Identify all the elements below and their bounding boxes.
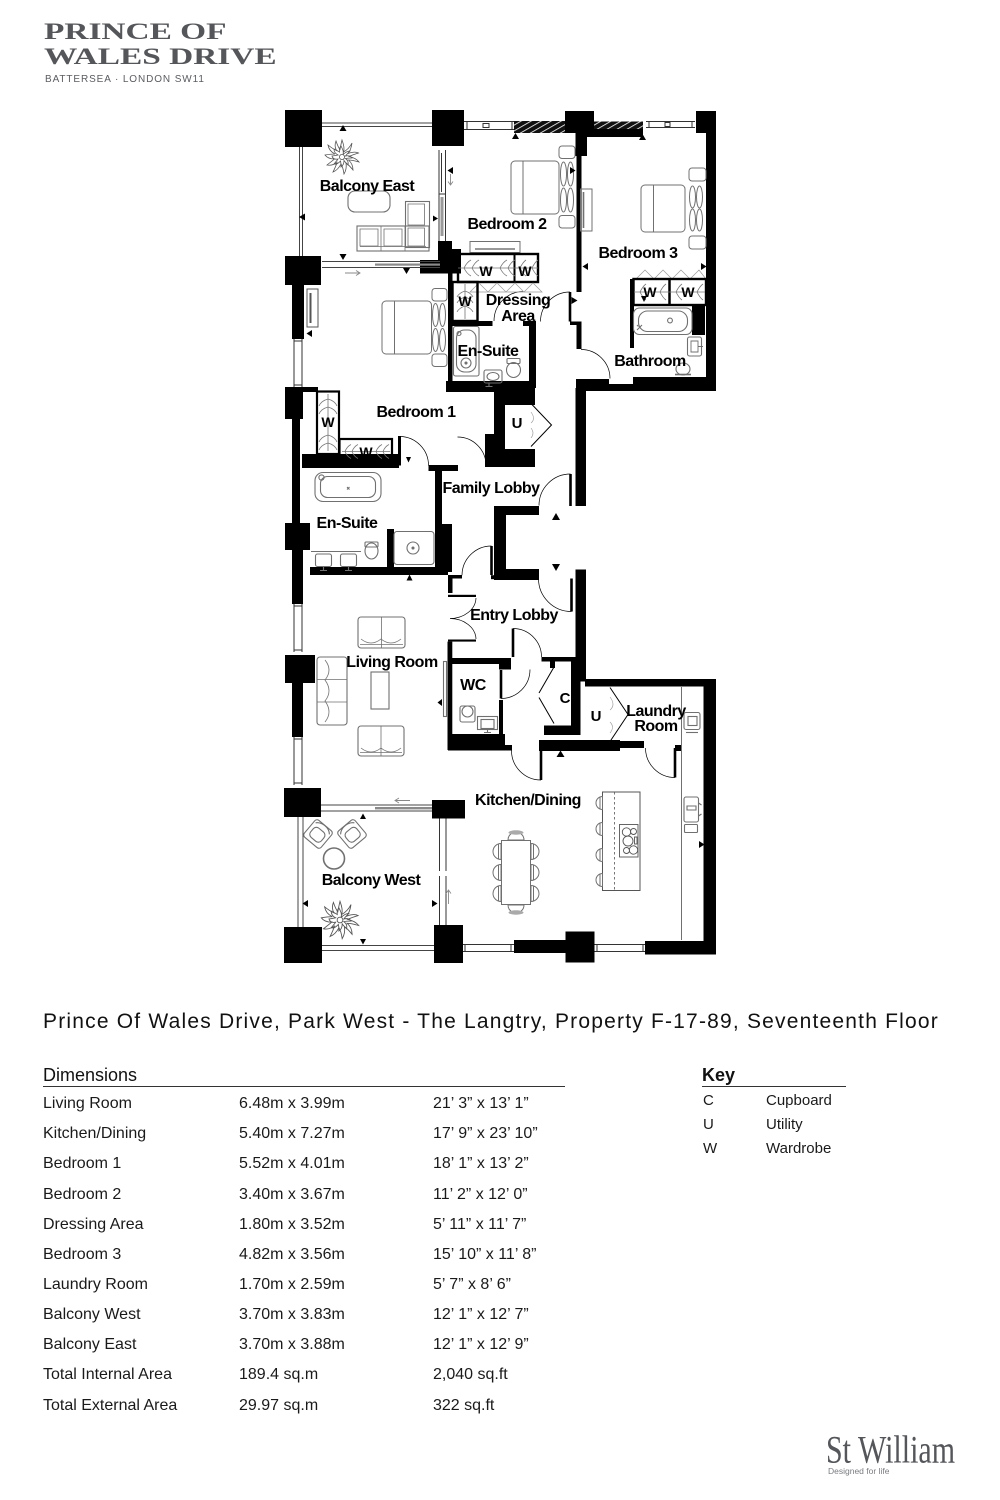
- svg-text:Area: Area: [501, 308, 535, 325]
- svg-text:W: W: [643, 284, 657, 300]
- svg-text:Bedroom 3: Bedroom 3: [598, 245, 678, 262]
- svg-text:U: U: [512, 415, 523, 432]
- svg-text:Living Room: Living Room: [346, 654, 438, 671]
- svg-text:Room: Room: [634, 718, 678, 735]
- svg-text:Balcony West: Balcony West: [322, 872, 422, 889]
- svg-text:W: W: [321, 414, 335, 430]
- svg-text:Kitchen/Dining: Kitchen/Dining: [475, 792, 581, 809]
- svg-text:W: W: [359, 444, 373, 460]
- svg-text:W: W: [518, 263, 532, 279]
- svg-text:W: W: [479, 263, 493, 279]
- svg-text:W: W: [681, 284, 695, 300]
- svg-text:C: C: [560, 690, 571, 707]
- svg-text:U: U: [591, 708, 602, 725]
- svg-text:Entry Lobby: Entry Lobby: [470, 607, 558, 624]
- svg-text:Dressing: Dressing: [486, 292, 550, 309]
- svg-text:Bathroom: Bathroom: [614, 353, 686, 370]
- svg-text:Family Lobby: Family Lobby: [442, 480, 540, 497]
- svg-text:Balcony East: Balcony East: [320, 178, 416, 195]
- svg-text:En-Suite: En-Suite: [458, 343, 519, 360]
- svg-text:WC: WC: [460, 677, 487, 694]
- svg-text:W: W: [458, 293, 472, 309]
- svg-text:Bedroom 2: Bedroom 2: [467, 216, 547, 233]
- svg-text:En-Suite: En-Suite: [317, 515, 378, 532]
- svg-text:Bedroom 1: Bedroom 1: [376, 404, 456, 421]
